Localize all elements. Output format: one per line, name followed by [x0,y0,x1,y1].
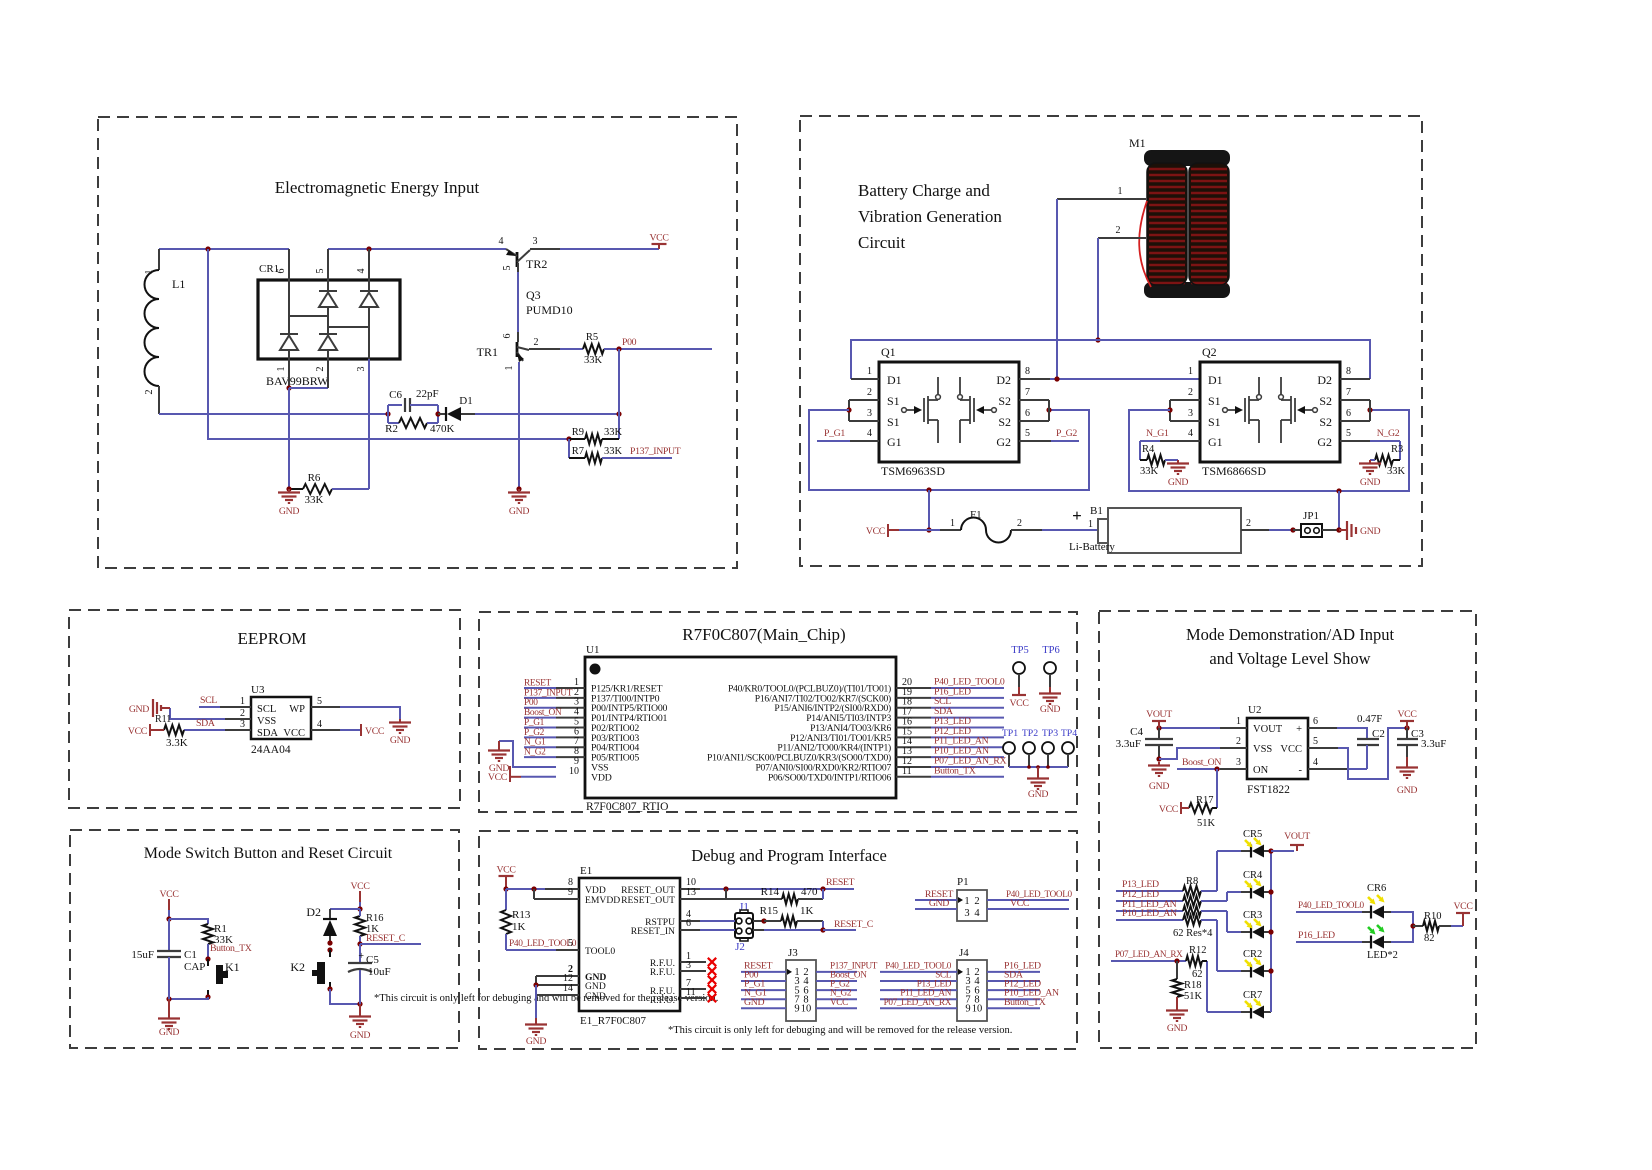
svg-text:SDA: SDA [196,718,215,729]
svg-text:G2: G2 [1317,435,1332,449]
svg-text:GND: GND [509,506,529,517]
svg-text:G1: G1 [1208,435,1223,449]
svg-text:P_G1: P_G1 [524,718,545,728]
svg-text:P00: P00 [524,698,538,708]
svg-text:R7F0C807_RTIO: R7F0C807_RTIO [586,801,668,813]
svg-text:G1: G1 [887,435,902,449]
svg-text:R7F0C807(Main_Chip): R7F0C807(Main_Chip) [682,625,845,644]
svg-text:RESET: RESET [524,679,552,689]
svg-text:P07_LED_AN_RX: P07_LED_AN_RX [1115,949,1183,959]
svg-text:3: 3 [1236,757,1241,768]
svg-text:K1: K1 [225,960,240,974]
svg-text:EMVDD: EMVDD [585,895,620,906]
svg-text:R10: R10 [1424,911,1442,922]
svg-text:VCC: VCC [1010,898,1029,909]
svg-text:5: 5 [317,696,322,707]
svg-text:S1: S1 [1208,415,1221,429]
svg-text:VCC: VCC [1280,744,1302,755]
svg-text:SCL: SCL [200,695,217,706]
svg-text:2: 2 [315,367,326,372]
svg-text:P137_INPUT: P137_INPUT [630,446,681,457]
svg-text:K2: K2 [290,960,305,974]
svg-text:JP1: JP1 [1303,510,1319,522]
svg-text:3.3uF: 3.3uF [1421,738,1446,750]
svg-text:GND: GND [1028,789,1048,800]
svg-text:470: 470 [801,886,818,898]
svg-text:F1: F1 [970,509,982,521]
svg-text:VCC: VCC [283,728,305,739]
svg-text:3: 3 [867,408,872,419]
svg-text:VCC: VCC [496,865,515,876]
svg-text:4: 4 [1188,428,1193,439]
svg-text:3: 3 [240,719,245,730]
svg-text:Li-Battery: Li-Battery [1069,541,1115,553]
svg-text:62 Res*4: 62 Res*4 [1173,928,1213,939]
svg-text:VCC: VCC [830,997,848,1007]
svg-text:3.3K: 3.3K [166,737,188,749]
svg-text:RESET_OUT: RESET_OUT [621,895,675,906]
svg-text:10: 10 [569,766,579,777]
svg-text:VCC: VCC [159,889,178,900]
svg-text:CR5: CR5 [1243,829,1262,840]
svg-text:GND: GND [1167,1023,1187,1034]
svg-text:SCL: SCL [257,704,276,715]
svg-text:RESET_C: RESET_C [834,919,873,930]
svg-text:9: 9 [568,887,573,898]
svg-text:1K: 1K [800,905,814,917]
svg-text:2: 2 [867,387,872,398]
svg-text:1: 1 [1236,716,1241,727]
svg-text:8: 8 [1346,366,1351,377]
svg-text:P_G2: P_G2 [1056,428,1077,439]
svg-text:GND: GND [526,1036,546,1047]
svg-text:VCC: VCC [1159,804,1178,815]
svg-text:N_G2: N_G2 [524,748,546,758]
svg-text:4: 4 [974,908,980,919]
svg-text:GND: GND [1040,704,1060,715]
svg-text:P_G2: P_G2 [524,728,545,738]
svg-text:33K: 33K [604,427,623,438]
svg-text:10uF: 10uF [368,966,391,978]
svg-text:22pF: 22pF [416,388,439,400]
svg-text:3: 3 [356,367,367,372]
svg-text:14: 14 [563,983,573,994]
svg-text:33K: 33K [604,446,623,457]
svg-text:6: 6 [502,334,513,339]
svg-text:C2: C2 [1372,728,1385,740]
svg-text:TP6: TP6 [1042,645,1060,656]
svg-text:U3: U3 [251,684,265,696]
svg-text:VCC: VCC [128,726,147,737]
svg-text:-: - [1299,765,1303,776]
svg-text:TP5: TP5 [1011,645,1029,656]
svg-text:CR2: CR2 [1243,949,1262,960]
svg-text:RESET_IN: RESET_IN [631,926,675,937]
svg-text:4: 4 [356,269,367,274]
svg-text:D1: D1 [1208,373,1223,387]
svg-text:GND: GND [929,898,949,909]
svg-text:1: 1 [1088,519,1093,530]
svg-text:R16: R16 [366,913,384,924]
svg-text:C5: C5 [366,954,379,966]
svg-text:CR7: CR7 [1243,990,1262,1001]
svg-text:EEPROM: EEPROM [238,629,307,648]
svg-text:CR4: CR4 [1243,870,1263,881]
svg-text:R8: R8 [1186,876,1198,887]
svg-text:R3: R3 [1391,444,1403,455]
svg-text:5: 5 [315,269,326,274]
svg-text:TR2: TR2 [526,257,547,271]
svg-text:6: 6 [686,918,691,929]
svg-text:33K: 33K [305,494,324,506]
svg-text:11: 11 [686,987,696,998]
svg-text:CAP: CAP [184,961,205,973]
svg-text:15uF: 15uF [131,949,154,961]
svg-text:R17: R17 [1196,795,1214,806]
svg-text:2: 2 [1017,518,1022,529]
svg-text:J3: J3 [788,947,798,959]
svg-text:2: 2 [974,896,979,907]
svg-text:L1: L1 [172,277,185,291]
svg-text:GND: GND [350,1030,370,1041]
svg-text:4: 4 [1313,757,1318,768]
svg-text:C4: C4 [1130,726,1143,738]
svg-text:R14: R14 [761,886,780,898]
svg-text:3.3uF: 3.3uF [1116,738,1141,750]
svg-text:P1: P1 [957,876,969,888]
svg-text:E1: E1 [580,865,592,877]
svg-text:24AA04: 24AA04 [251,744,291,756]
svg-text:R12: R12 [1189,945,1207,956]
svg-text:33K: 33K [1387,466,1406,477]
svg-text:S2: S2 [998,394,1011,408]
svg-text:Vibration Generation: Vibration Generation [858,207,1002,226]
svg-text:5: 5 [502,266,513,271]
svg-text:TP2: TP2 [1022,728,1038,739]
svg-text:Electromagnetic Energy Input: Electromagnetic Energy Input [275,178,480,197]
svg-text:VCC: VCC [649,233,668,244]
svg-text:TP3: TP3 [1042,728,1058,739]
svg-text:Circuit: Circuit [858,233,905,252]
svg-text:GND: GND [1360,526,1380,537]
svg-text:U1: U1 [586,644,599,656]
svg-text:S1: S1 [1208,394,1221,408]
svg-text:VDD: VDD [591,772,612,783]
svg-text:TSM6866SD: TSM6866SD [1202,464,1266,478]
svg-text:1: 1 [276,367,287,372]
svg-text:470K: 470K [430,423,455,435]
svg-text:R.F.U.: R.F.U. [650,995,675,1006]
svg-text:1: 1 [950,518,955,529]
svg-text:P00: P00 [622,337,637,348]
svg-text:Q3: Q3 [526,288,541,302]
svg-text:2: 2 [1236,736,1241,747]
svg-text:CR3: CR3 [1243,910,1262,921]
svg-text:R9: R9 [572,427,584,438]
svg-text:VOUT: VOUT [1146,709,1172,720]
svg-text:D2: D2 [1317,373,1332,387]
svg-text:82: 82 [1424,933,1435,944]
svg-text:2: 2 [534,337,539,348]
svg-text:D1: D1 [887,373,902,387]
svg-text:Button_TX: Button_TX [1004,997,1046,1008]
svg-text:R7: R7 [572,446,584,457]
svg-text:VCC: VCC [1397,709,1416,720]
svg-text:R6: R6 [308,472,321,484]
svg-text:R2: R2 [385,423,398,435]
svg-text:6: 6 [1313,716,1318,727]
svg-text:B1: B1 [1090,505,1103,517]
svg-text:GND: GND [585,991,606,1002]
svg-text:GND: GND [1360,477,1380,488]
svg-text:ON: ON [1253,765,1269,776]
svg-text:VCC: VCC [1009,698,1028,709]
svg-text:GND: GND [390,735,410,746]
svg-text:13: 13 [686,887,696,898]
svg-text:P40_LED_TOOL0: P40_LED_TOOL0 [1298,900,1364,910]
svg-text:D2: D2 [996,373,1011,387]
svg-text:3: 3 [686,960,691,971]
svg-text:+: + [1072,506,1082,525]
svg-text:R5: R5 [586,332,598,343]
svg-text:6: 6 [276,269,287,274]
svg-text:GND: GND [744,997,764,1008]
svg-text:4: 4 [317,719,322,730]
svg-text:S2: S2 [1319,415,1332,429]
svg-text:R4: R4 [1142,444,1155,455]
svg-text:VCC: VCC [488,772,507,783]
svg-text:N_G1: N_G1 [1146,428,1169,439]
svg-text:TP4: TP4 [1061,728,1077,739]
svg-text:S1: S1 [887,415,900,429]
svg-text:VCC: VCC [866,526,885,537]
svg-text:33K: 33K [1140,466,1159,477]
svg-text:P40_LED_TOOL0: P40_LED_TOOL0 [509,939,577,949]
svg-text:1: 1 [1188,366,1193,377]
svg-text:VCC: VCC [350,881,369,892]
svg-text:Battery Charge and: Battery Charge and [858,181,990,200]
svg-text:0.47F: 0.47F [1357,713,1382,725]
svg-text:R11: R11 [155,714,171,725]
svg-text:VSS: VSS [1253,744,1272,755]
svg-text:M1: M1 [1129,136,1146,150]
svg-text:10: 10 [972,1004,983,1015]
svg-text:6: 6 [1346,408,1351,419]
svg-text:Debug and Program Interface: Debug and Program Interface [691,846,887,865]
svg-text:LED*2: LED*2 [1367,950,1398,961]
svg-text:VCC: VCC [1453,901,1472,912]
svg-text:VCC: VCC [365,726,384,737]
svg-text:N_G2: N_G2 [1377,428,1400,439]
svg-text:GND: GND [279,506,299,517]
svg-text:CR6: CR6 [1367,883,1386,894]
svg-text:4: 4 [867,428,872,439]
svg-text:TSM6963SD: TSM6963SD [881,464,945,478]
svg-text:P07_LED_AN_RX: P07_LED_AN_RX [884,997,952,1007]
svg-text:VOUT: VOUT [1284,831,1310,842]
svg-text:+: + [358,951,364,962]
svg-text:Boost_ON: Boost_ON [524,708,562,718]
svg-text:U2: U2 [1248,704,1261,716]
svg-text:FST1822: FST1822 [1247,784,1290,796]
svg-text:51K: 51K [1197,818,1216,829]
svg-text:J2: J2 [735,941,745,953]
svg-text:1: 1 [964,896,969,907]
svg-text:RESET_C: RESET_C [366,933,405,944]
svg-text:11: 11 [902,766,912,777]
svg-text:VSS: VSS [257,716,276,727]
svg-text:51K: 51K [1184,991,1203,1002]
svg-text:9: 9 [794,1004,799,1015]
svg-text:1K: 1K [512,921,526,933]
svg-text:1: 1 [240,696,245,707]
svg-text:*This circuit is only left for: *This circuit is only left for debuging … [668,1025,1012,1036]
svg-text:P_G1: P_G1 [824,428,845,439]
svg-text:Mode Switch Button and Reset C: Mode Switch Button and Reset Circuit [144,845,393,862]
svg-text:R.F.U.: R.F.U. [650,967,675,978]
svg-text:+: + [1296,724,1302,735]
svg-text:5: 5 [1025,428,1030,439]
svg-text:TR1: TR1 [477,345,498,359]
svg-text:2: 2 [1188,387,1193,398]
svg-text:WP: WP [289,704,305,715]
svg-text:GND: GND [1168,477,1188,488]
svg-text:R15: R15 [760,905,779,917]
svg-text:D2: D2 [306,905,321,919]
svg-text:2: 2 [1116,225,1121,236]
svg-text:3: 3 [964,908,969,919]
svg-text:3: 3 [1188,408,1193,419]
svg-text:J4: J4 [959,947,969,959]
svg-text:C1: C1 [184,949,197,961]
svg-text:Button_TX: Button_TX [934,765,976,776]
svg-text:6: 6 [1025,408,1030,419]
svg-text:1: 1 [867,366,872,377]
svg-text:P137_INPUT: P137_INPUT [524,688,573,698]
svg-text:Boost_ON: Boost_ON [1182,757,1221,768]
svg-text:TP1: TP1 [1002,728,1018,739]
svg-text:1: 1 [144,270,155,275]
svg-text:62: 62 [1192,969,1203,980]
svg-text:Mode Demonstration/AD Input: Mode Demonstration/AD Input [1186,625,1394,644]
svg-text:TOOL0: TOOL0 [585,946,615,957]
svg-text:Q2: Q2 [1202,345,1217,359]
svg-text:C6: C6 [389,389,402,401]
svg-text:RESET: RESET [826,877,855,888]
svg-text:GND: GND [159,1027,179,1038]
svg-text:5: 5 [1313,736,1318,747]
svg-text:GND: GND [1149,781,1169,792]
svg-text:G2: G2 [996,435,1011,449]
svg-text:N_G1: N_G1 [524,738,546,748]
svg-text:5: 5 [568,938,573,949]
svg-text:1: 1 [504,366,515,371]
svg-text:E1_R7F0C807: E1_R7F0C807 [580,1015,647,1027]
svg-text:10: 10 [801,1004,812,1015]
svg-text:33K: 33K [584,355,603,366]
svg-text:P06/SO00/TXD0/INTP1/RTIO06: P06/SO00/TXD0/INTP1/RTIO06 [768,772,891,783]
svg-text:1: 1 [1118,186,1123,197]
svg-text:4: 4 [499,236,504,247]
svg-text:D1: D1 [459,395,472,407]
svg-text:S2: S2 [998,415,1011,429]
svg-text:2: 2 [1246,518,1251,529]
svg-text:7: 7 [1346,387,1351,398]
svg-text:and Voltage Level Show: and Voltage Level Show [1209,649,1370,668]
svg-text:R18: R18 [1184,980,1202,991]
svg-text:S1: S1 [887,394,900,408]
svg-text:8: 8 [1025,366,1030,377]
svg-text:PUMD10: PUMD10 [526,303,573,317]
svg-text:SDA: SDA [257,728,278,739]
svg-text:P16_LED: P16_LED [1298,930,1335,941]
svg-text:7: 7 [1025,387,1030,398]
svg-text:GND: GND [1397,785,1417,796]
svg-text:2: 2 [240,708,245,719]
svg-text:9: 9 [965,1004,970,1015]
svg-text:S2: S2 [1319,394,1332,408]
svg-text:GND: GND [129,704,149,715]
svg-text:VOUT: VOUT [1253,724,1283,735]
svg-text:Q1: Q1 [881,345,896,359]
svg-text:2: 2 [144,390,155,395]
svg-text:R13: R13 [512,909,531,921]
svg-text:3: 3 [533,236,538,247]
svg-text:P10_LED_AN: P10_LED_AN [1122,908,1177,919]
svg-text:BAV99BRW: BAV99BRW [266,374,329,388]
svg-text:5: 5 [1346,428,1351,439]
svg-text:Button_TX: Button_TX [210,943,252,954]
